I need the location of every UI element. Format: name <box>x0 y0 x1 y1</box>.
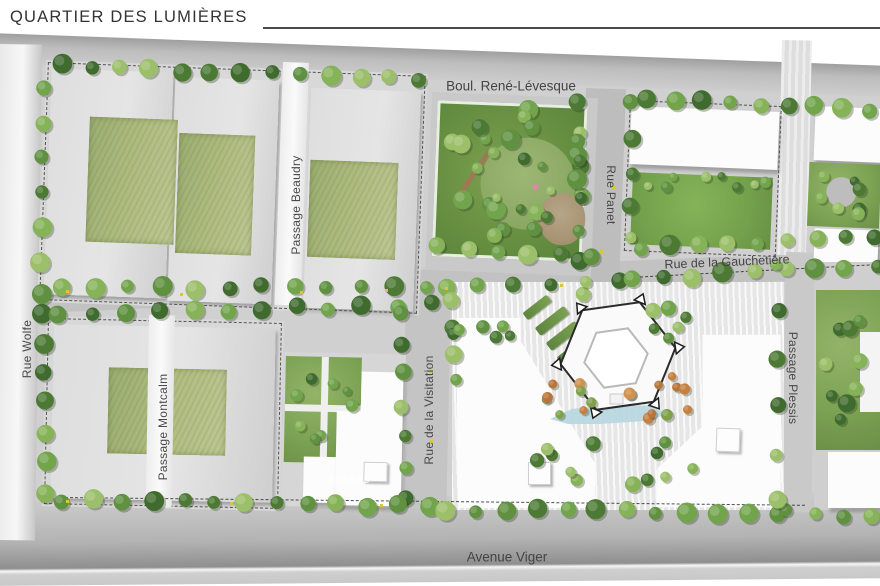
tree-highlight <box>38 427 47 436</box>
tree-highlight <box>37 187 44 194</box>
tree-highlight <box>851 177 856 182</box>
tree-highlight <box>421 282 427 288</box>
tree-highlight <box>840 231 847 238</box>
tree-highlight <box>569 171 579 181</box>
tree-highlight <box>811 509 817 515</box>
tree-highlight <box>187 282 196 291</box>
label-montcalm: Passage Montcalm <box>156 374 170 481</box>
tree-highlight <box>391 497 400 506</box>
tree-highlight <box>688 464 693 469</box>
tree-highlight <box>770 492 779 501</box>
tree-highlight <box>807 260 817 270</box>
street-lamp-icon <box>180 293 183 296</box>
tree-highlight <box>36 336 46 346</box>
tree-highlight <box>587 398 592 403</box>
tree-highlight <box>650 324 655 329</box>
tree-highlight <box>639 91 648 100</box>
tree-highlight <box>806 98 815 107</box>
tree-highlight <box>648 410 652 414</box>
tree-highlight <box>294 68 301 75</box>
tree-highlight <box>751 181 755 185</box>
tree-highlight <box>447 347 456 356</box>
tree-highlight <box>733 183 738 188</box>
pavilion-notch <box>610 394 623 404</box>
tree-highlight <box>836 415 842 421</box>
tree-highlight <box>519 111 526 118</box>
tree-highlight <box>673 383 678 388</box>
tree-highlight <box>587 438 595 446</box>
tree-highlight <box>383 71 390 78</box>
tree-highlight <box>816 193 822 199</box>
label-wolfe: Rue Wolfe <box>20 320 34 379</box>
tree-highlight <box>575 156 581 162</box>
tree-highlight <box>119 306 128 315</box>
tree-highlight <box>347 401 353 407</box>
tree-highlight <box>478 321 485 328</box>
tree-highlight <box>360 500 369 509</box>
tree-highlight <box>574 226 580 232</box>
tree-highlight <box>498 322 504 328</box>
tree-highlight <box>642 475 648 481</box>
tree-highlight <box>530 501 540 511</box>
tree-highlight <box>855 316 861 322</box>
tree-highlight <box>538 163 543 168</box>
tree-highlight <box>507 278 515 286</box>
tree-highlight <box>556 411 560 415</box>
tree-highlight <box>562 503 570 511</box>
tree-highlight <box>581 277 587 283</box>
tree-highlight <box>322 304 329 311</box>
street-lamp-icon <box>230 502 233 505</box>
tree-highlight <box>625 132 634 141</box>
tree-highlight <box>772 399 780 407</box>
tree-highlight <box>843 322 851 330</box>
tree-highlight <box>39 454 49 464</box>
tree-highlight <box>627 478 635 486</box>
tree-highlight <box>291 299 299 307</box>
tree-highlight <box>307 374 313 380</box>
hexagon-corner-marker <box>552 358 562 370</box>
tree-highlight <box>694 92 704 102</box>
tree-highlight <box>669 373 673 377</box>
tree-highlight <box>180 494 187 501</box>
street-lamp-icon <box>300 291 303 294</box>
tree-highlight <box>854 184 861 191</box>
tree-highlight <box>296 422 302 428</box>
tree-highlight <box>834 324 841 331</box>
tree-highlight <box>783 99 791 107</box>
tree-highlight <box>86 491 96 501</box>
label-plessis: Passage Plessis <box>786 332 800 425</box>
tree-highlight <box>430 239 438 247</box>
tree-highlight <box>585 250 593 258</box>
tree-highlight <box>542 444 548 450</box>
tree-highlight <box>395 307 403 315</box>
tree-highlight <box>34 306 44 316</box>
tree-highlight <box>625 272 633 280</box>
tree-highlight <box>422 499 432 509</box>
tree-highlight <box>471 279 478 286</box>
tree-highlight <box>88 280 98 290</box>
tree-highlight <box>38 82 46 90</box>
tree-highlight <box>55 496 62 503</box>
tree-highlight <box>771 450 777 456</box>
tree-highlight <box>820 359 827 366</box>
tree-highlight <box>542 212 548 218</box>
tree-highlight <box>531 455 538 462</box>
tree-highlight <box>255 303 264 312</box>
street-lamp-icon <box>385 289 388 292</box>
tree-highlight <box>684 271 693 280</box>
tree-highlight <box>493 194 497 198</box>
tree-highlight <box>761 178 767 184</box>
tree-highlight <box>37 117 45 125</box>
tree-highlight <box>626 389 632 395</box>
tree-highlight <box>827 391 833 397</box>
tree-highlight <box>470 507 476 513</box>
tree-highlight <box>661 237 671 247</box>
tree-highlight <box>386 278 396 288</box>
tree-highlight <box>153 304 162 313</box>
label-panet: Rue Panet <box>604 165 618 224</box>
tree-highlight <box>528 223 535 230</box>
tree-highlight <box>679 505 689 515</box>
tree-highlight <box>236 495 245 504</box>
tree-highlight <box>620 503 628 511</box>
tree-highlight <box>549 380 554 385</box>
tree-highlight <box>587 501 597 511</box>
tree-highlight <box>681 313 687 319</box>
tree-highlight <box>674 323 680 329</box>
tree-highlight <box>517 205 522 210</box>
tree-highlight <box>623 199 631 207</box>
tree-highlight <box>725 97 732 104</box>
hexagon-corner-marker <box>675 342 685 354</box>
street-lamp-icon <box>445 287 448 290</box>
tree-highlight <box>493 247 500 254</box>
tree-highlight <box>454 325 460 331</box>
tree-highlight <box>175 65 184 74</box>
tree-highlight <box>576 193 582 199</box>
tree-highlight <box>580 407 584 411</box>
tree-highlight <box>668 93 677 102</box>
tree-highlight <box>397 365 405 373</box>
tree-highlight <box>55 280 64 289</box>
tree-highlight <box>35 219 45 229</box>
tree-highlight <box>577 288 584 295</box>
tree-highlight <box>833 203 839 209</box>
tree-highlight <box>122 281 128 287</box>
street-lamp-icon <box>66 500 69 503</box>
tree-highlight <box>853 209 860 216</box>
tree-highlight <box>329 379 334 384</box>
tree-highlight <box>853 355 861 363</box>
tree-highlight <box>755 100 763 108</box>
tree-highlight <box>395 401 402 408</box>
tree-highlight <box>770 352 779 361</box>
tree-highlight <box>311 435 316 440</box>
tree-highlight <box>872 261 879 268</box>
tree-highlight <box>662 410 668 416</box>
tree-highlight <box>645 183 649 187</box>
label-viger: Avenue Viger <box>467 550 548 565</box>
label-beaudry: Passage Beaudry <box>289 155 303 254</box>
tree-highlight <box>473 164 479 170</box>
tree-highlight <box>626 233 632 239</box>
tree-highlight <box>710 506 720 516</box>
tree-highlight <box>37 366 45 374</box>
tree-highlight <box>222 305 230 313</box>
tree-highlight <box>543 393 548 398</box>
tree-highlight <box>680 384 686 390</box>
tree-highlight <box>741 506 751 516</box>
tree-highlight <box>355 71 364 80</box>
site-plan-page: QUARTIER DES LUMIÈRES <box>0 0 880 586</box>
tree-highlight <box>519 154 525 160</box>
tree-highlight <box>650 508 657 515</box>
tree-highlight <box>155 278 165 288</box>
tree-highlight <box>838 511 845 518</box>
street-lamp-icon <box>560 284 563 287</box>
tree-highlight <box>454 137 463 146</box>
tree-highlight <box>34 286 44 296</box>
tree-highlight <box>692 237 701 246</box>
tree-highlight <box>272 497 279 504</box>
tree-highlight <box>613 274 621 282</box>
tree-highlight <box>463 243 471 251</box>
tree-highlight <box>572 135 580 143</box>
tree-highlight <box>530 206 538 214</box>
tree-highlight <box>488 229 496 237</box>
tree-highlight <box>660 438 666 444</box>
tree-highlight <box>356 281 363 288</box>
tree-highlight <box>652 448 658 454</box>
tree-highlight <box>655 381 659 385</box>
tree-highlight <box>575 128 581 134</box>
tree-highlight <box>233 65 243 75</box>
tree-highlight <box>146 493 156 503</box>
tree-highlight <box>401 463 408 470</box>
tree-highlight <box>87 62 94 69</box>
tree-highlight <box>520 247 530 257</box>
tree-highlight <box>662 302 670 310</box>
tree-highlight <box>499 503 508 512</box>
tree-highlight <box>834 100 844 110</box>
tree-highlight <box>658 271 665 278</box>
tree-highlight <box>413 74 420 81</box>
tree-highlight <box>473 121 481 129</box>
tree-highlight <box>577 387 582 392</box>
tree-highlight <box>188 302 197 311</box>
tree-highlight <box>395 338 403 346</box>
tree-highlight <box>400 431 406 437</box>
tree-highlight <box>343 387 347 391</box>
tree-highlight <box>670 173 674 177</box>
street-lamp-icon <box>66 290 69 293</box>
tree-highlight <box>491 332 497 338</box>
tree-highlight <box>224 283 231 290</box>
label-visitation: Rue de la Visitation <box>422 355 436 464</box>
tree-highlight <box>624 96 632 104</box>
tree-highlight <box>323 68 333 78</box>
tree-highlight <box>819 172 825 178</box>
tree-highlight <box>32 254 42 264</box>
tree-highlight <box>864 105 872 113</box>
tree-highlight <box>36 151 43 158</box>
tree-highlight <box>55 56 65 66</box>
tree-highlight <box>320 282 327 289</box>
trees-and-features-layer <box>0 0 880 586</box>
tree-highlight <box>773 305 781 313</box>
street-lamp-icon <box>380 504 383 507</box>
tree-highlight <box>661 473 666 478</box>
tree-highlight <box>50 307 59 316</box>
tree-highlight <box>566 468 571 473</box>
tree-highlight <box>444 294 452 302</box>
street-lamp-icon <box>600 250 603 253</box>
tree-highlight <box>555 248 563 256</box>
tree-highlight <box>702 173 707 178</box>
tree-highlight <box>292 390 298 396</box>
tree-highlight <box>503 131 513 141</box>
tree-highlight <box>684 406 689 411</box>
tree-highlight <box>572 254 581 263</box>
tree-highlight <box>87 309 94 316</box>
tree-highlight <box>209 497 215 503</box>
tree-highlight <box>547 187 551 191</box>
tree-highlight <box>489 148 495 154</box>
tree-highlight <box>329 496 337 504</box>
tree-highlight <box>837 262 846 271</box>
tree-highlight <box>840 396 849 405</box>
tree-highlight <box>718 173 722 177</box>
tree-highlight <box>426 296 434 304</box>
tree-highlight <box>525 121 533 129</box>
tree-highlight <box>113 61 120 68</box>
tree-highlight <box>627 169 633 175</box>
tree-highlight <box>255 279 263 287</box>
tree-highlight <box>752 239 759 246</box>
tree-highlight <box>455 192 465 202</box>
tree-highlight <box>721 237 729 245</box>
tree-highlight <box>546 280 552 286</box>
tree-highlight <box>267 66 274 73</box>
tree-highlight <box>202 65 211 74</box>
tree-highlight <box>38 486 47 495</box>
label-rene-levesque: Boul. René-Lévesque <box>446 79 576 94</box>
tree-highlight <box>38 393 47 402</box>
tree-highlight <box>664 334 669 339</box>
tree-highlight <box>302 497 310 505</box>
tree-highlight <box>575 379 581 385</box>
tree-highlight <box>353 297 363 307</box>
tree-highlight <box>868 231 876 239</box>
tree-highlight <box>635 244 642 251</box>
tree-highlight <box>570 95 579 104</box>
tree-highlight <box>811 232 819 240</box>
tree-highlight <box>451 375 457 381</box>
tree-highlight <box>115 496 123 504</box>
tree-highlight <box>289 280 297 288</box>
tree-highlight <box>782 235 789 242</box>
tree-highlight <box>865 510 873 518</box>
tree-highlight <box>647 304 655 312</box>
tree-highlight <box>662 183 667 188</box>
tree-highlight <box>437 503 447 513</box>
tree-highlight <box>141 61 150 70</box>
tree-highlight <box>849 383 856 390</box>
